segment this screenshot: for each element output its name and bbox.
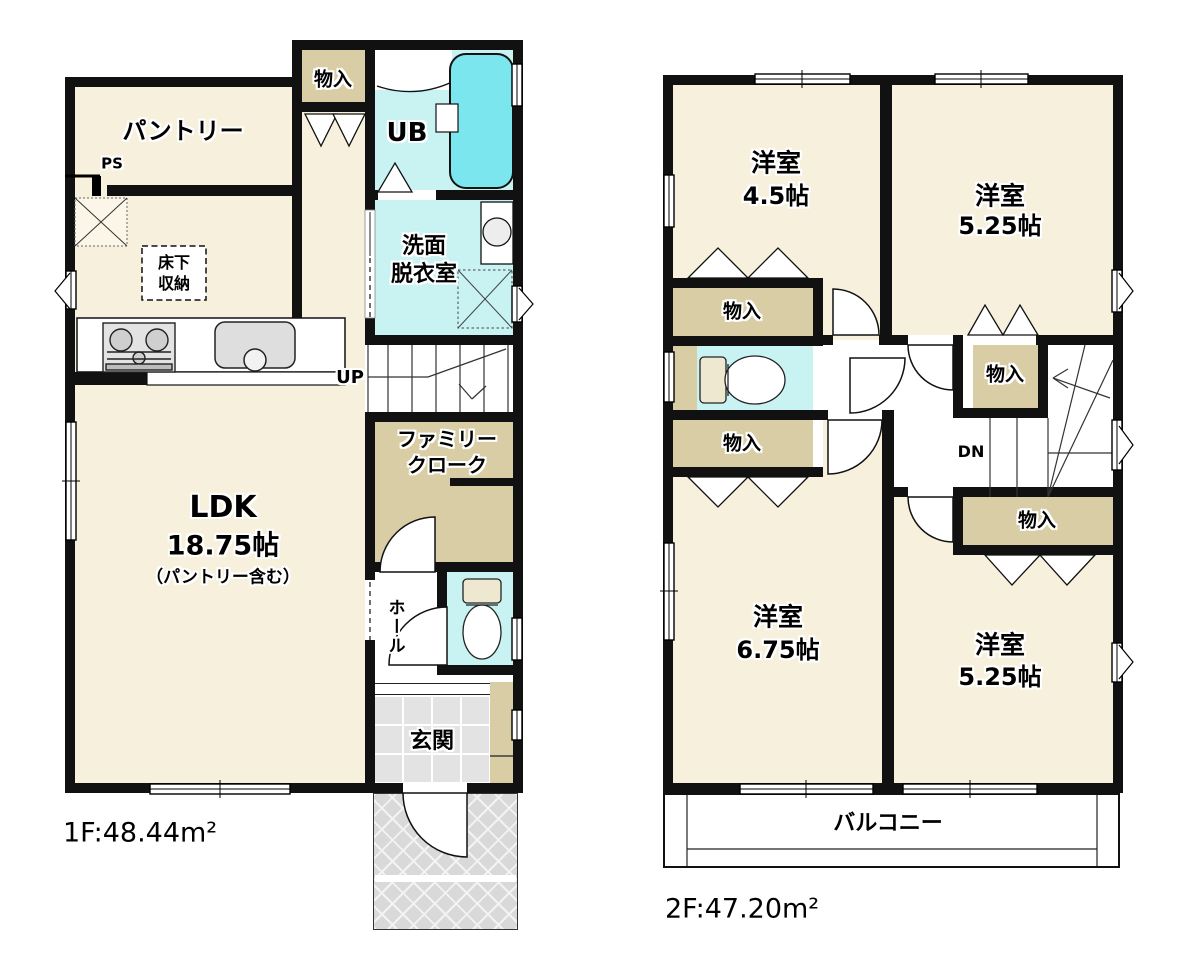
wall	[663, 75, 673, 793]
room-label-ldk-size: 18.75帖	[167, 533, 279, 560]
room-label-closet-small: 物入	[986, 366, 1024, 385]
toilet-2f-counter	[673, 346, 697, 410]
wall	[663, 278, 823, 288]
wall	[292, 50, 302, 318]
wall	[1036, 335, 1113, 345]
label-underfloor-2: 収納	[158, 276, 190, 292]
door-opening	[403, 783, 467, 793]
wall	[882, 410, 894, 783]
wall	[663, 783, 1123, 793]
wall	[365, 412, 523, 422]
porch-divider	[375, 875, 516, 882]
door-opening	[378, 190, 436, 200]
room-label-bedroom-sw-size: 6.75帖	[736, 638, 819, 662]
wall	[663, 336, 823, 346]
room-label-family-closet-2: クローク	[407, 455, 487, 475]
wall	[292, 40, 523, 50]
room-label-washroom-1: 洗面	[402, 236, 446, 258]
wall	[880, 85, 892, 335]
wall	[953, 487, 1113, 497]
wall	[437, 572, 447, 610]
room-label-ldk: LDK	[189, 493, 256, 523]
wall	[663, 410, 828, 420]
wall	[953, 497, 963, 545]
wall	[663, 75, 1123, 85]
room-label-bedroom-ne-size: 5.25帖	[958, 214, 1041, 238]
floor2-area-label: 2F:47.20m²	[665, 894, 819, 925]
room-label-bedroom-se: 洋室	[975, 633, 1025, 658]
shoe-cabinet	[490, 682, 513, 783]
floor1-area-label: 1F:48.44m²	[63, 818, 217, 849]
room-label-bedroom-nw-size: 4.5帖	[743, 184, 810, 208]
room-toilet-1f-floor	[447, 572, 513, 665]
room-label-closet-a: 物入	[723, 303, 761, 322]
room-toilet-2f-floor	[697, 346, 813, 410]
entrance-step	[373, 683, 490, 695]
room-label-bedroom-se-size: 5.25帖	[958, 665, 1041, 689]
label-stairs-down: DN	[958, 444, 985, 460]
wall	[1038, 345, 1048, 408]
room-corridor-floor	[302, 112, 373, 345]
wall	[365, 693, 375, 783]
room-label-balcony: バルコニー	[833, 813, 943, 835]
wall	[107, 185, 297, 196]
wall	[663, 467, 823, 477]
room-label-entrance: 玄関	[410, 731, 454, 753]
room-bedroom-sw-floor2	[823, 420, 882, 477]
wall	[879, 335, 908, 345]
wall	[450, 478, 513, 486]
door-bedroom-ne	[908, 345, 953, 390]
room-label-hall: ホール	[386, 599, 403, 656]
room-label-family-closet-1: ファミリー	[397, 429, 497, 449]
door-opening	[380, 562, 435, 572]
room-label-bedroom-nw: 洋室	[751, 151, 801, 176]
wall	[963, 408, 1048, 418]
room-label-pantry: パントリー	[122, 119, 243, 143]
label-pipe-space: PS	[101, 157, 123, 172]
floor-plan-canvas: 物入 UB パントリー PS 洗面 脱衣室 床下 収納 UP ファミリー クロー…	[0, 0, 1187, 962]
room-label-bedroom-ne: 洋室	[975, 184, 1025, 209]
room-label-closet-1f: 物入	[314, 71, 352, 90]
wall	[894, 487, 908, 497]
room-label-ldk-note: （パントリー含む）	[146, 570, 300, 587]
label-stairs-up: UP	[336, 369, 364, 387]
label-underfloor-1: 床下	[158, 255, 190, 271]
door-opening	[365, 580, 375, 640]
wall	[365, 40, 375, 210]
entrance-porch	[373, 793, 518, 930]
wall	[953, 545, 1113, 555]
room-label-washroom-2: 脱衣室	[391, 264, 457, 286]
wall	[65, 77, 302, 87]
door-toilet-2f	[850, 358, 905, 413]
room-label-bedroom-sw: 洋室	[753, 605, 803, 630]
wall	[365, 422, 375, 562]
room-label-unit-bath: UB	[387, 120, 428, 146]
wall	[302, 102, 365, 112]
room-label-closet-b: 物入	[723, 435, 761, 454]
wall	[437, 665, 523, 675]
wall	[953, 335, 963, 418]
stairs-1f	[368, 345, 508, 412]
wall	[65, 77, 75, 793]
wall	[1113, 75, 1123, 793]
room-label-closet-c: 物入	[1018, 512, 1056, 531]
wall	[365, 335, 523, 345]
wall	[65, 372, 147, 385]
wall	[823, 335, 833, 345]
